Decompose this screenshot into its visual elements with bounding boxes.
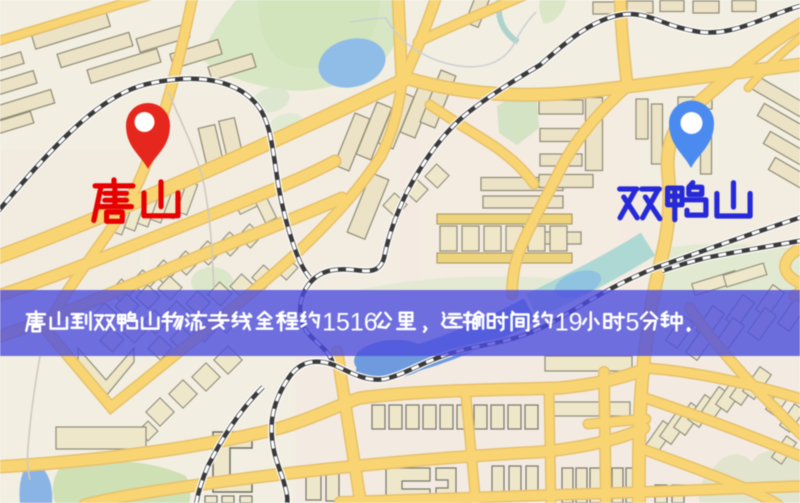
svg-text:1516: 1516 [322,309,378,337]
svg-text:5: 5 [626,309,640,337]
svg-text:19: 19 [555,309,583,337]
